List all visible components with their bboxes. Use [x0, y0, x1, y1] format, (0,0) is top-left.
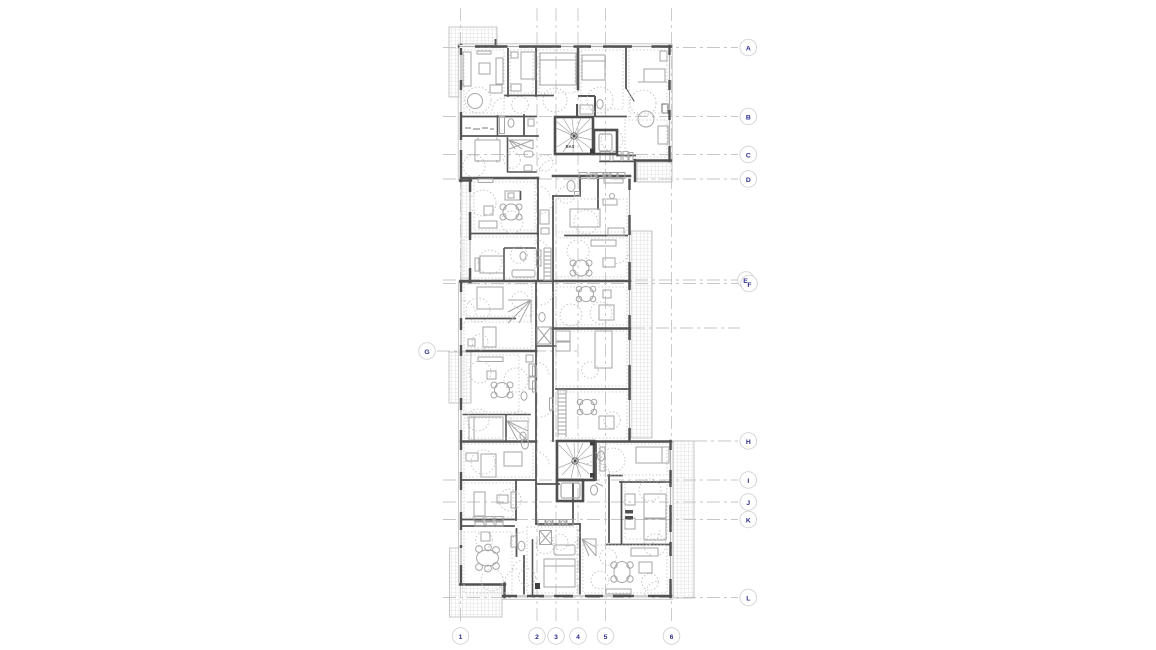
- svg-text:K: K: [746, 518, 751, 525]
- svg-text:J: J: [746, 500, 750, 507]
- svg-text:5: 5: [604, 634, 608, 641]
- svg-text:G: G: [424, 349, 429, 356]
- svg-text:A: A: [746, 46, 751, 53]
- svg-text:D: D: [746, 177, 751, 184]
- svg-text:I: I: [747, 478, 749, 485]
- svg-text:1: 1: [459, 634, 463, 641]
- svg-text:6: 6: [670, 634, 674, 641]
- svg-text:BAS: BAS: [566, 144, 575, 149]
- svg-text:3: 3: [554, 634, 558, 641]
- svg-text:B: B: [746, 115, 751, 122]
- svg-text:C: C: [746, 153, 751, 160]
- svg-text:4: 4: [576, 634, 580, 641]
- svg-text:H: H: [746, 439, 751, 446]
- svg-text:L: L: [746, 596, 750, 603]
- svg-text:2: 2: [535, 634, 539, 641]
- svg-text:F: F: [747, 282, 751, 289]
